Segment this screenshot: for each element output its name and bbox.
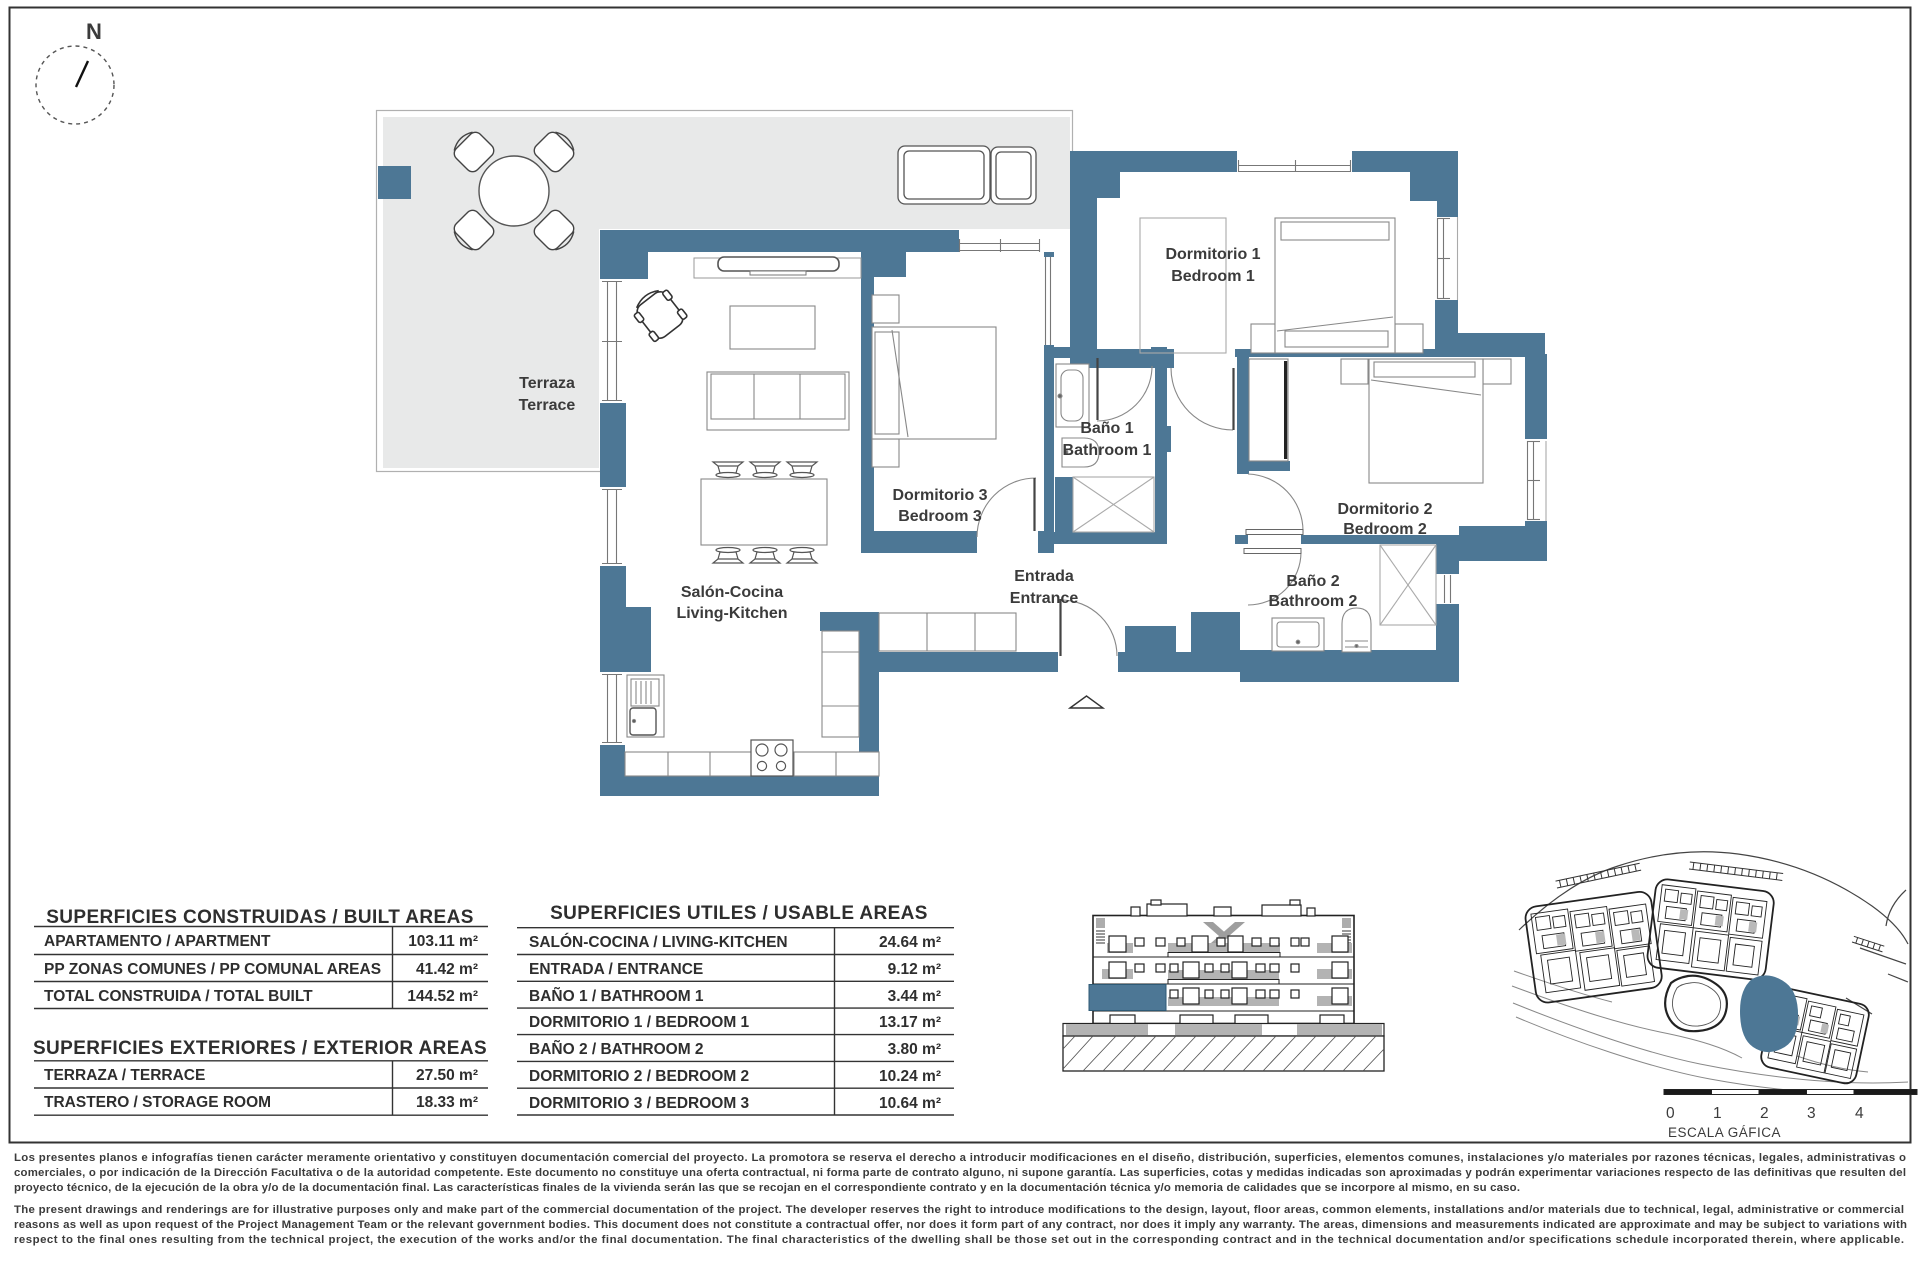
- svg-text:144.52 m²: 144.52 m²: [407, 988, 478, 1005]
- svg-text:respect to the final ones resu: respect to the final ones resulting from…: [14, 1234, 1904, 1246]
- svg-text:SUPERFICIES EXTERIORES / EXTER: SUPERFICIES EXTERIORES / EXTERIOR AREAS: [33, 1038, 487, 1059]
- svg-text:Bathroom 2: Bathroom 2: [1269, 593, 1358, 610]
- svg-text:ESCALA GÁFICA: ESCALA GÁFICA: [1668, 1125, 1781, 1140]
- svg-text:3.80 m²: 3.80 m²: [888, 1041, 941, 1058]
- svg-text:Entrance: Entrance: [1010, 590, 1079, 607]
- svg-text:1: 1: [1713, 1105, 1722, 1122]
- svg-text:TOTAL CONSTRUIDA / TOTAL BUILT: TOTAL CONSTRUIDA / TOTAL BUILT: [44, 988, 313, 1005]
- svg-text:4: 4: [1855, 1105, 1864, 1122]
- svg-text:Dormitorio 2: Dormitorio 2: [1337, 501, 1432, 518]
- svg-text:SALÓN-COCINA / LIVING-KITCHEN: SALÓN-COCINA / LIVING-KITCHEN: [529, 933, 788, 951]
- svg-text:reasons as well as upon reques: reasons as well as upon request of the P…: [14, 1219, 1907, 1231]
- svg-text:13.17 m²: 13.17 m²: [879, 1014, 941, 1031]
- svg-text:proyecto técnico, de la ejecuc: proyecto técnico, de la ejecución de la …: [14, 1182, 1520, 1194]
- svg-text:ENTRADA / ENTRANCE: ENTRADA / ENTRANCE: [529, 961, 703, 978]
- svg-text:Bathroom 1: Bathroom 1: [1063, 442, 1152, 459]
- svg-text:Bedroom 3: Bedroom 3: [898, 508, 982, 525]
- svg-text:2: 2: [1760, 1105, 1769, 1122]
- svg-text:DORMITORIO 2 / BEDROOM 2: DORMITORIO 2 / BEDROOM 2: [529, 1068, 749, 1085]
- svg-text:Dormitorio 1: Dormitorio 1: [1165, 246, 1260, 263]
- svg-text:18.33 m²: 18.33 m²: [416, 1094, 478, 1111]
- svg-text:BAÑO 2 / BATHROOM 2: BAÑO 2 / BATHROOM 2: [529, 1040, 704, 1058]
- svg-text:Dormitorio 3: Dormitorio 3: [892, 487, 987, 504]
- svg-text:Bedroom 1: Bedroom 1: [1171, 268, 1255, 285]
- svg-text:10.64 m²: 10.64 m²: [879, 1095, 941, 1112]
- svg-text:103.11 m²: 103.11 m²: [408, 933, 478, 950]
- svg-text:27.50 m²: 27.50 m²: [416, 1067, 478, 1084]
- svg-text:24.64 m²: 24.64 m²: [879, 934, 941, 951]
- svg-text:Terrace: Terrace: [519, 397, 576, 414]
- svg-text:Los presentes planos e infogra: Los presentes planos e infografías tiene…: [14, 1152, 1906, 1164]
- svg-text:SUPERFICIES UTILES / USABLE AR: SUPERFICIES UTILES / USABLE AREAS: [550, 903, 928, 924]
- svg-text:Living-Kitchen: Living-Kitchen: [676, 605, 787, 622]
- svg-text:Entrada: Entrada: [1014, 568, 1074, 585]
- svg-text:The present drawings and rende: The present drawings and renderings are …: [14, 1204, 1904, 1216]
- svg-text:Bedroom 2: Bedroom 2: [1343, 521, 1427, 538]
- svg-text:comerciales, o por indicación: comerciales, o por indicación de la Dire…: [14, 1167, 1906, 1179]
- svg-text:41.42 m²: 41.42 m²: [416, 961, 478, 978]
- svg-text:Terraza: Terraza: [519, 375, 575, 392]
- svg-text:DORMITORIO 1 / BEDROOM 1: DORMITORIO 1 / BEDROOM 1: [529, 1014, 750, 1031]
- svg-text:APARTAMENTO / APARTMENT: APARTAMENTO / APARTMENT: [44, 933, 271, 950]
- svg-text:BAÑO 1 / BATHROOM 1: BAÑO 1 / BATHROOM 1: [529, 987, 704, 1005]
- svg-text:9.12 m²: 9.12 m²: [888, 961, 941, 978]
- svg-text:3: 3: [1807, 1105, 1816, 1122]
- svg-text:3.44 m²: 3.44 m²: [888, 988, 941, 1005]
- svg-text:SUPERFICIES CONSTRUIDAS / BUIL: SUPERFICIES CONSTRUIDAS / BUILT AREAS: [46, 907, 474, 928]
- svg-text:N: N: [86, 19, 102, 44]
- svg-text:Baño 2: Baño 2: [1286, 573, 1339, 590]
- svg-text:DORMITORIO 3 / BEDROOM 3: DORMITORIO 3 / BEDROOM 3: [529, 1095, 750, 1112]
- svg-text:TERRAZA / TERRACE: TERRAZA / TERRACE: [44, 1067, 205, 1084]
- svg-text:Baño 1: Baño 1: [1080, 420, 1133, 437]
- svg-text:10.24 m²: 10.24 m²: [879, 1068, 941, 1085]
- svg-text:Salón-Cocina: Salón-Cocina: [681, 584, 783, 601]
- svg-text:0: 0: [1666, 1105, 1675, 1122]
- svg-text:PP ZONAS COMUNES / PP COMUNAL: PP ZONAS COMUNES / PP COMUNAL AREAS: [44, 961, 381, 978]
- svg-text:TRASTERO / STORAGE ROOM: TRASTERO / STORAGE ROOM: [44, 1094, 271, 1111]
